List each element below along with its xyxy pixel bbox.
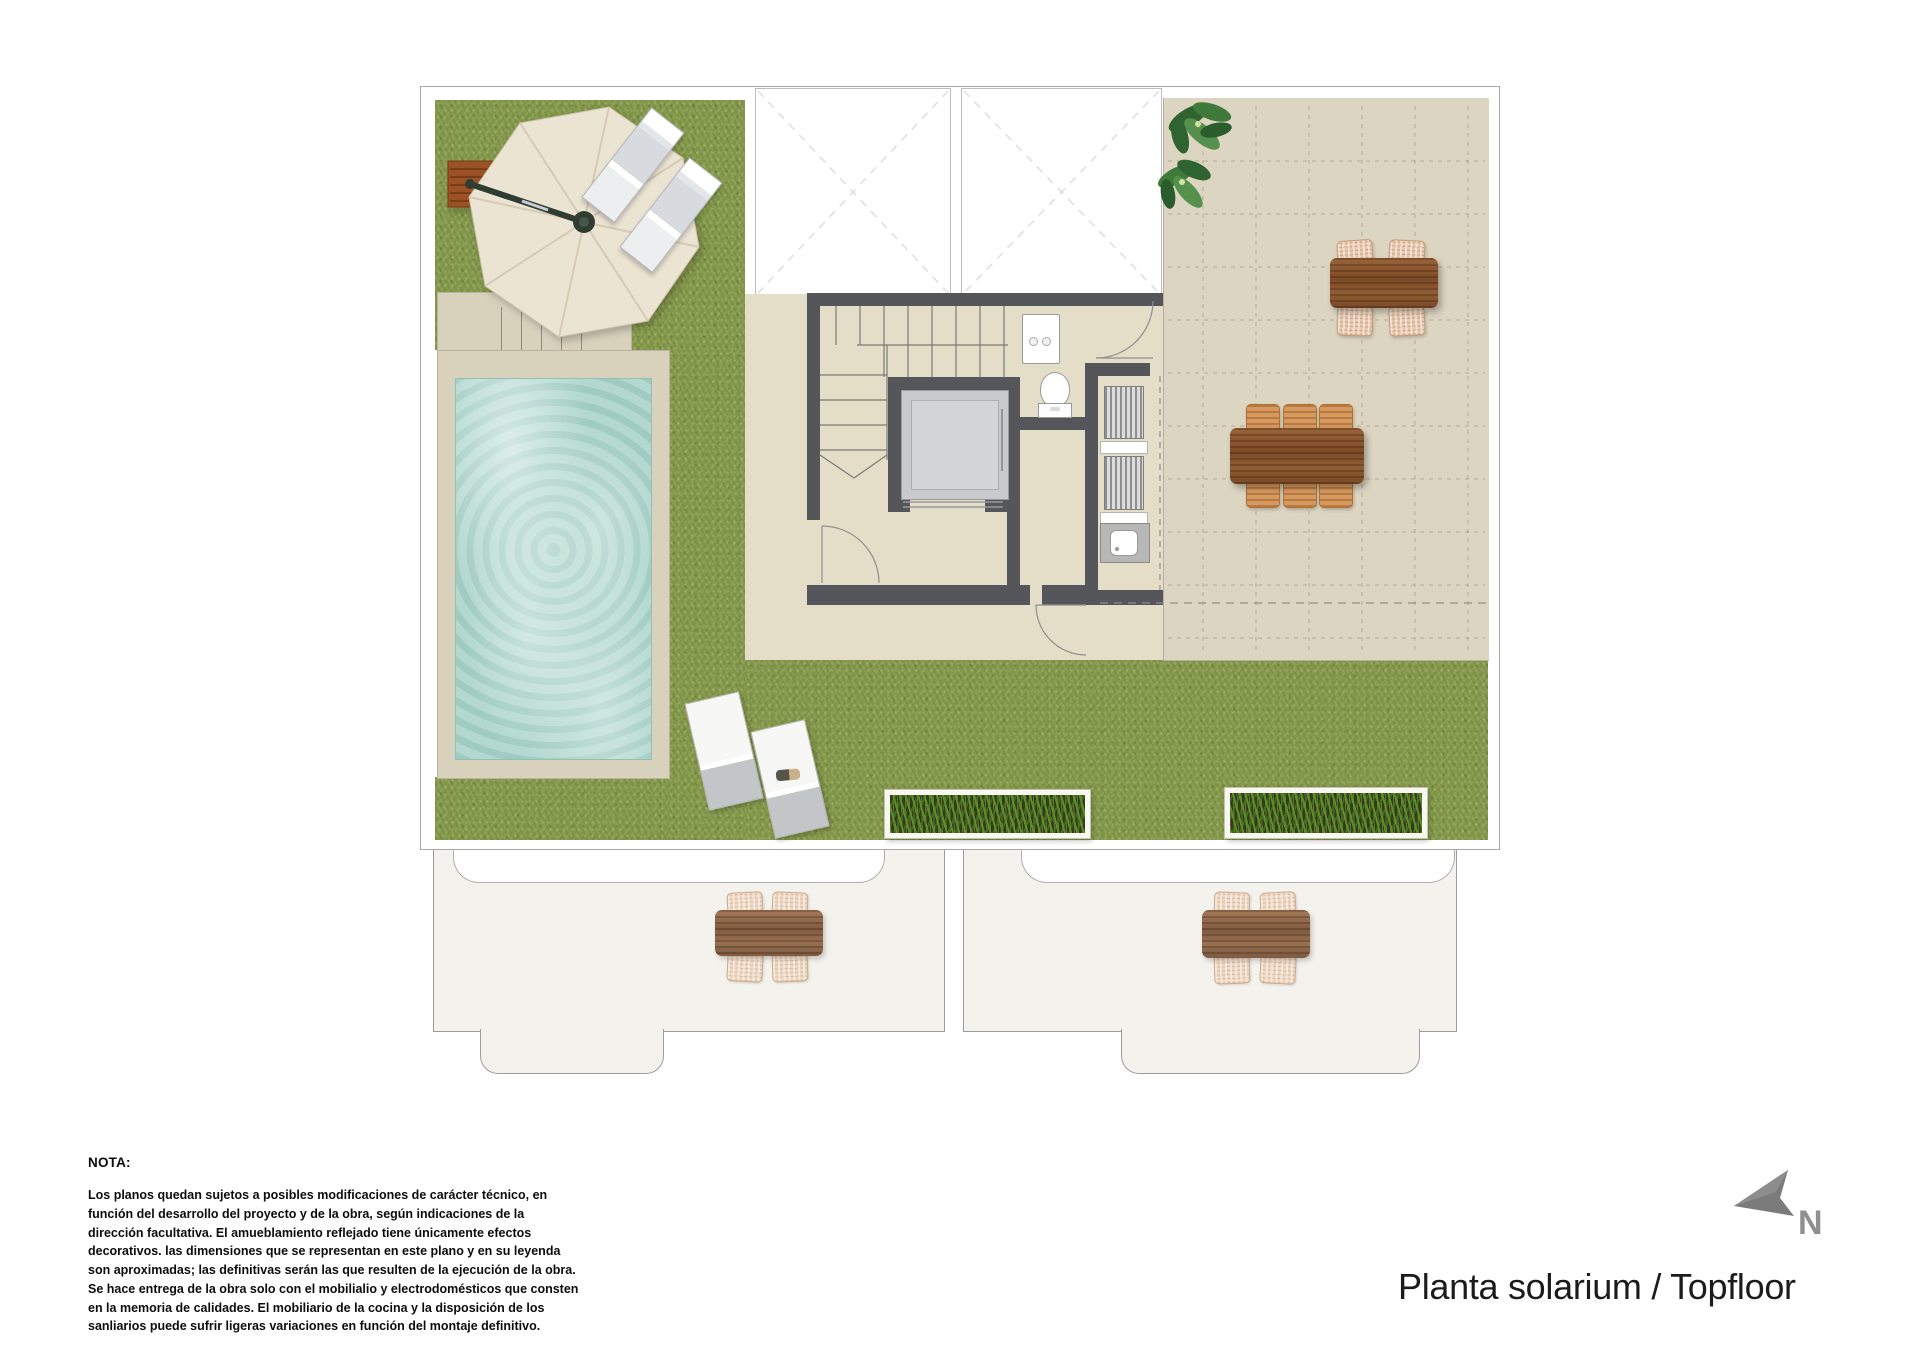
floorplan-sheet: NOTA: Los planos quedan sujetos a posibl…	[0, 0, 1920, 1357]
terrace-step-right	[1121, 1029, 1420, 1074]
chair	[1388, 305, 1426, 337]
toilet-bowl	[1040, 372, 1070, 407]
chair	[1246, 480, 1280, 508]
wardrobe-shelf-1	[1100, 441, 1148, 454]
toilet	[1038, 372, 1072, 418]
toilet-tank	[1038, 403, 1072, 418]
chair	[1213, 953, 1250, 984]
plant-icon	[1150, 90, 1250, 230]
north-label: N	[1798, 1204, 1823, 1243]
note-body: Los planos quedan sujetos a posibles mod…	[88, 1186, 580, 1336]
terrace-step-left	[480, 1029, 664, 1074]
elevator-sill	[903, 502, 1003, 507]
plan-title: Planta solarium / Topfloor	[1398, 1266, 1796, 1308]
chair	[1283, 480, 1317, 508]
note-heading: NOTA:	[88, 1155, 580, 1170]
chair	[771, 951, 808, 982]
kitchenette-counter	[1100, 523, 1150, 563]
dining-table	[715, 910, 823, 956]
towel-icon	[776, 768, 801, 781]
chair	[1336, 305, 1373, 336]
sink-icon	[1110, 530, 1138, 556]
dining-table-large	[1230, 428, 1364, 484]
dining-table	[1330, 258, 1438, 308]
awning-outline-left	[453, 848, 885, 883]
wardrobe-louver-1	[1104, 386, 1144, 439]
dining-table	[1202, 910, 1310, 958]
chair	[1319, 480, 1353, 508]
awning-outline-right	[1021, 848, 1455, 883]
note-block: NOTA: Los planos quedan sujetos a posibl…	[88, 1155, 580, 1336]
wardrobe-louver-2	[1104, 456, 1144, 510]
north-arrow-icon	[1732, 1168, 1802, 1220]
washbasin	[1022, 314, 1060, 364]
staircase	[820, 306, 1008, 478]
